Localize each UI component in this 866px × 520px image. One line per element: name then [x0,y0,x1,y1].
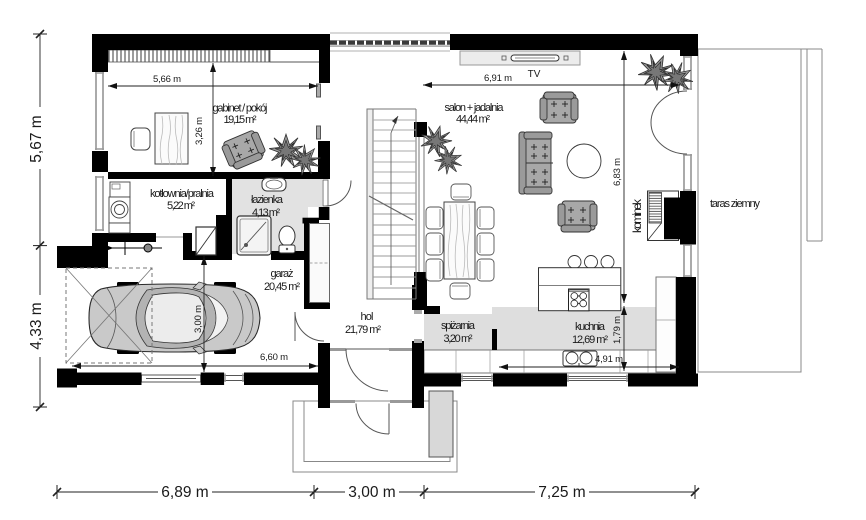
svg-text:4,33 m: 4,33 m [28,302,45,349]
svg-text:5,66 m: 5,66 m [153,74,181,85]
svg-text:6,83 m: 6,83 m [612,158,623,186]
svg-text:21,79 m²: 21,79 m² [345,324,381,336]
svg-text:4,13 m²: 4,13 m² [252,207,280,219]
svg-text:3,20 m²: 3,20 m² [444,333,473,345]
svg-text:4,91 m: 4,91 m [595,354,623,365]
svg-text:kotłownia/pralnia: kotłownia/pralnia [150,188,215,200]
svg-text:3,26 m: 3,26 m [194,117,205,145]
svg-text:kominek: kominek [630,198,644,233]
svg-text:gabinet / pokój: gabinet / pokój [213,103,268,115]
svg-text:7,25 m: 7,25 m [538,484,585,501]
svg-text:12,69 m²: 12,69 m² [572,334,608,346]
svg-text:44,44 m²: 44,44 m² [456,114,490,126]
svg-text:19,15 m²: 19,15 m² [224,114,257,126]
svg-text:20,45 m²: 20,45 m² [264,281,300,293]
svg-text:garaż: garaż [271,268,294,280]
svg-text:6,60 m: 6,60 m [260,352,288,363]
svg-text:taras ziemny: taras ziemny [710,198,761,210]
svg-text:5,22 m²: 5,22 m² [167,200,195,212]
svg-text:łazienka: łazienka [251,194,284,206]
svg-text:5,67 m: 5,67 m [28,115,45,162]
svg-text:kuchnia: kuchnia [575,321,606,333]
svg-text:6,89 m: 6,89 m [161,484,208,501]
svg-text:3,00 m: 3,00 m [348,484,395,501]
svg-text:hol: hol [361,311,374,323]
svg-text:1,79 m: 1,79 m [612,316,623,344]
svg-text:TV: TV [528,69,541,80]
svg-text:6,91 m: 6,91 m [484,73,512,84]
svg-text:spiżarnia: spiżarnia [441,320,476,332]
svg-text:3,00 m: 3,00 m [193,305,204,333]
svg-text:salon + jadalnia: salon + jadalnia [445,102,505,114]
